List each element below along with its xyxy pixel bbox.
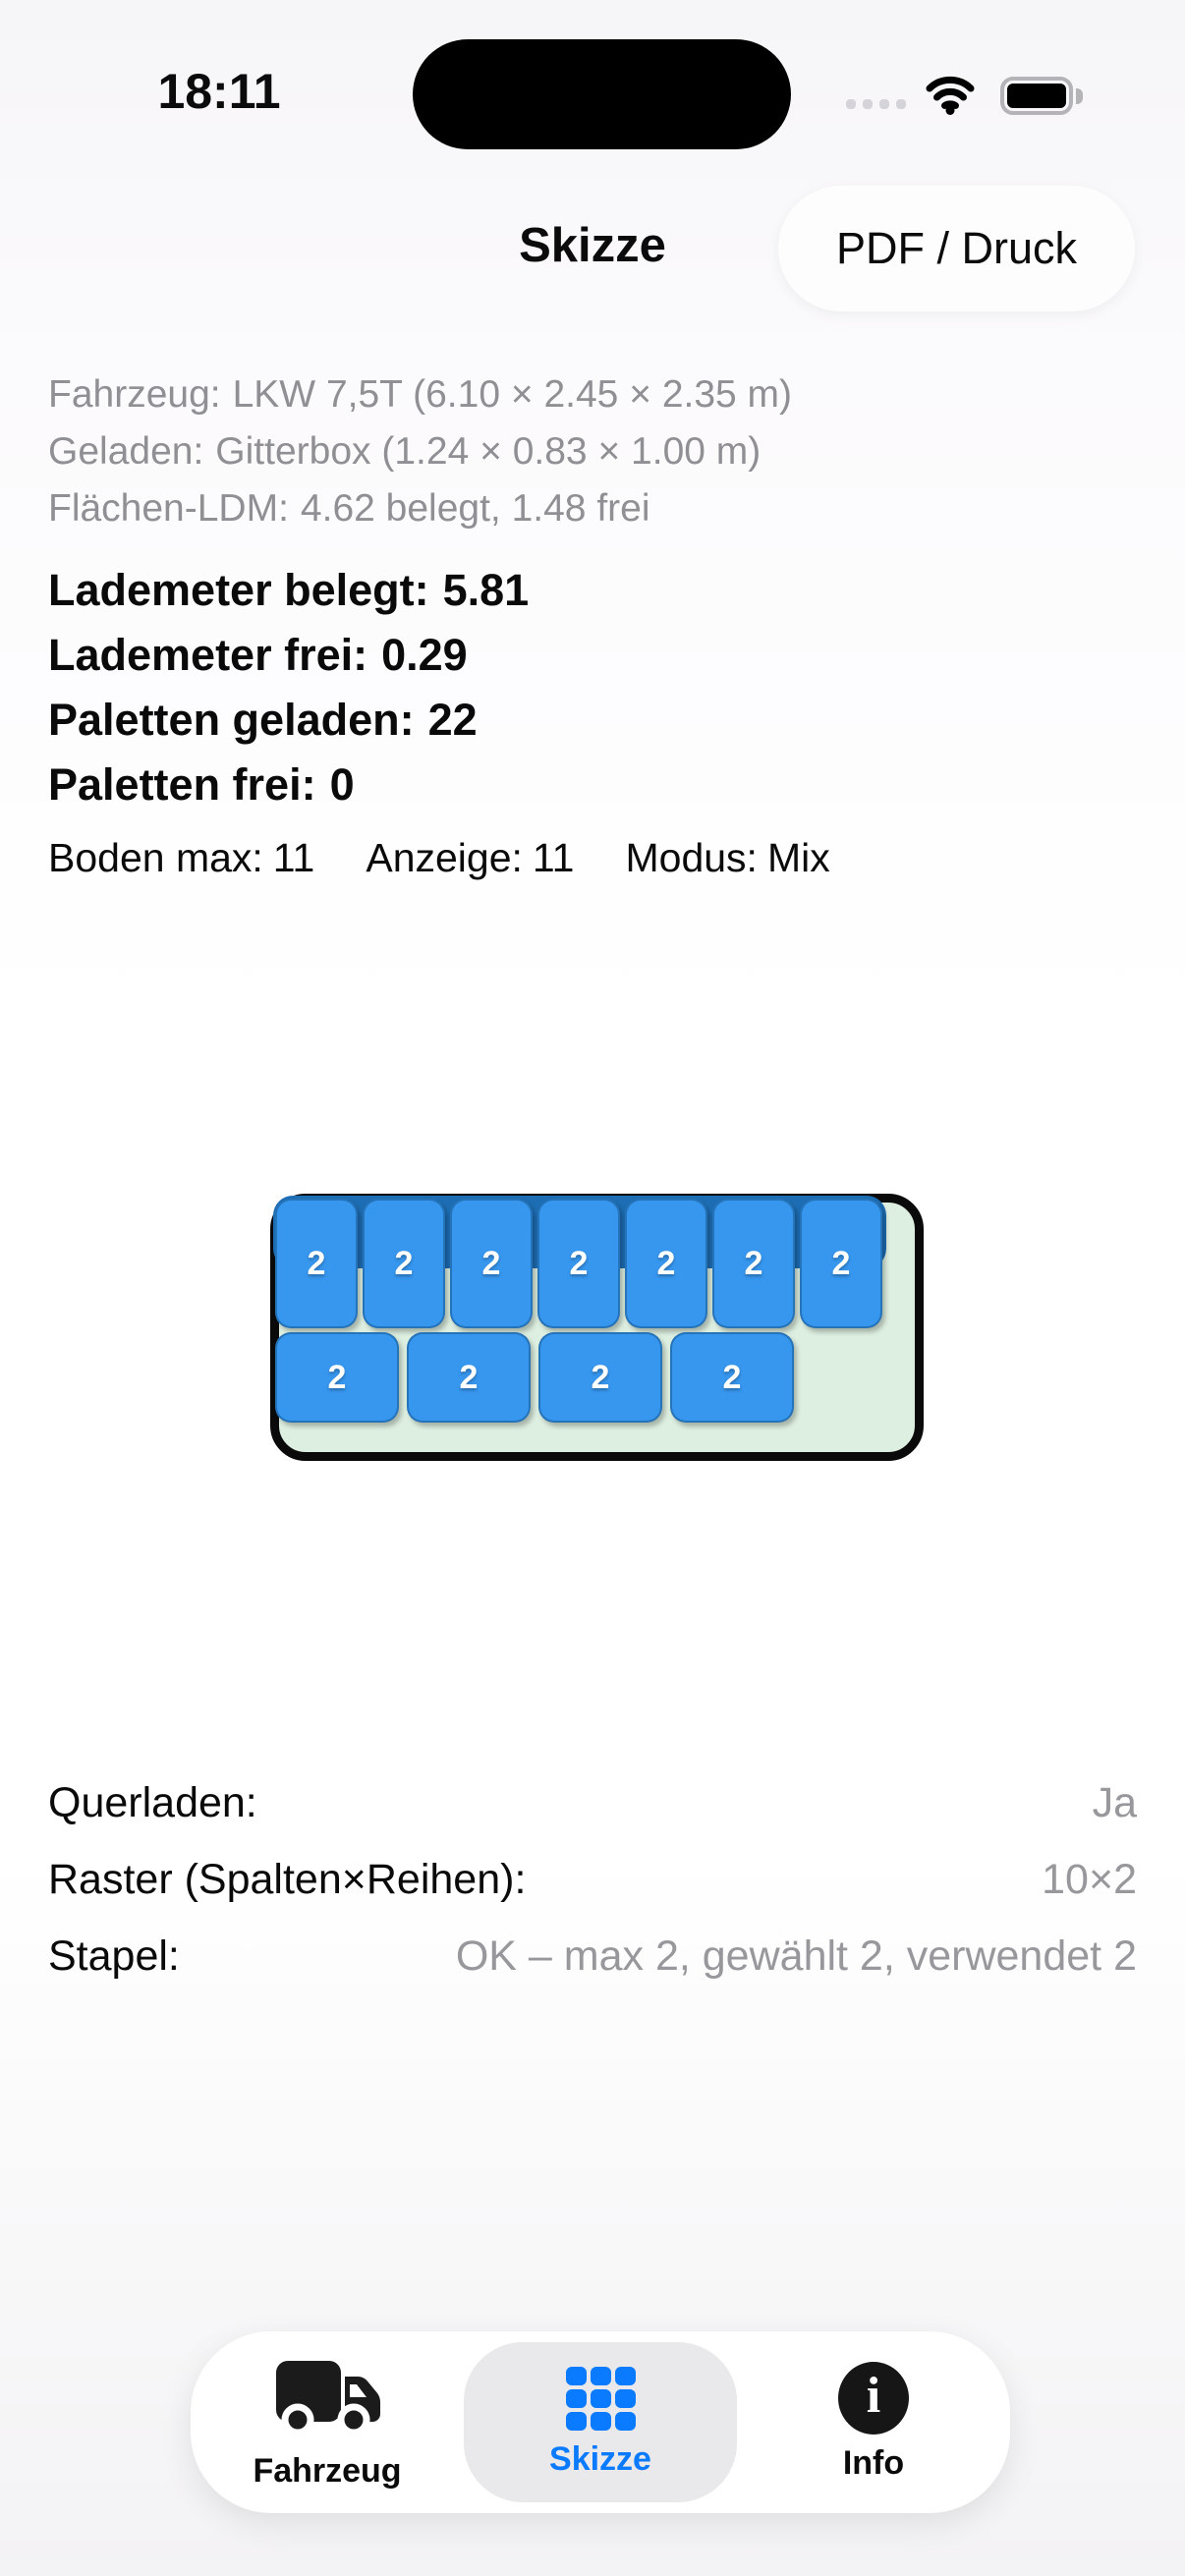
loaded-line: Geladen:Gitterbox (1.24 × 0.83 × 1.00 m) [48, 423, 792, 480]
dynamic-island [413, 39, 791, 149]
meta-row: Boden max:11 Anzeige:11 Modus:Mix [48, 834, 830, 881]
info-icon: i [838, 2362, 909, 2435]
meta-boden-max: Boden max:11 [48, 834, 314, 881]
detail-raster: Raster (Spalten×Reihen):10×2 [48, 1841, 1137, 1918]
pallet: 2 [538, 1332, 662, 1423]
pallet: 2 [363, 1199, 445, 1328]
stat-lademeter-belegt: Lademeter belegt:5.81 [48, 558, 529, 623]
summary-block: Fahrzeug:LKW 7,5T (6.10 × 2.45 × 2.35 m)… [48, 366, 792, 537]
pallet: 2 [450, 1199, 533, 1328]
pallet: 2 [407, 1332, 531, 1423]
pallet: 2 [670, 1332, 794, 1423]
details-block: Querladen:Ja Raster (Spalten×Reihen):10×… [48, 1764, 1137, 1994]
app-screen: 18:11 Skizze PDF / Druck Fahrzeug:LKW 7,… [0, 0, 1185, 2576]
stat-paletten-geladen: Paletten geladen:22 [48, 688, 529, 753]
pallet: 2 [800, 1199, 882, 1328]
battery-icon [1000, 77, 1073, 115]
detail-stapel: Stapel:OK – max 2, gewählt 2, verwendet … [48, 1918, 1137, 1994]
stat-paletten-frei: Paletten frei:0 [48, 753, 529, 817]
cellular-signal-icon [846, 99, 906, 109]
meta-modus: Modus:Mix [625, 834, 829, 881]
pallet: 2 [275, 1199, 358, 1328]
battery-nub [1076, 88, 1083, 104]
tab-info[interactable]: i Info [737, 2331, 1010, 2513]
tab-info-label: Info [843, 2444, 904, 2483]
stat-lademeter-frei: Lademeter frei:0.29 [48, 623, 529, 688]
ldm-line: Flächen-LDM:4.62 belegt, 1.48 frei [48, 480, 792, 537]
stats-block: Lademeter belegt:5.81 Lademeter frei:0.2… [48, 558, 529, 817]
wifi-icon [925, 74, 976, 120]
tab-skizze-label: Skizze [549, 2440, 651, 2479]
tab-skizze[interactable]: Skizze [464, 2342, 737, 2502]
grid-icon [566, 2367, 636, 2431]
pallet: 2 [275, 1332, 399, 1423]
tab-fahrzeug[interactable]: Fahrzeug [191, 2331, 464, 2513]
truck-icon [272, 2355, 382, 2442]
pallet: 2 [712, 1199, 795, 1328]
status-time: 18:11 [116, 63, 322, 120]
detail-querladen: Querladen:Ja [48, 1764, 1137, 1841]
pallet: 2 [537, 1199, 620, 1328]
meta-anzeige: Anzeige:11 [366, 834, 574, 881]
pallet: 2 [625, 1199, 707, 1328]
pdf-print-button-label: PDF / Druck [836, 223, 1077, 274]
pdf-print-button[interactable]: PDF / Druck [778, 186, 1135, 311]
load-diagram-truck-bed: 2 2 2 2 2 2 2 2 2 2 2 [270, 1194, 924, 1461]
tab-bar: Fahrzeug Skizze i Info [191, 2331, 1010, 2513]
tab-fahrzeug-label: Fahrzeug [253, 2452, 401, 2491]
vehicle-line: Fahrzeug:LKW 7,5T (6.10 × 2.45 × 2.35 m) [48, 366, 792, 423]
